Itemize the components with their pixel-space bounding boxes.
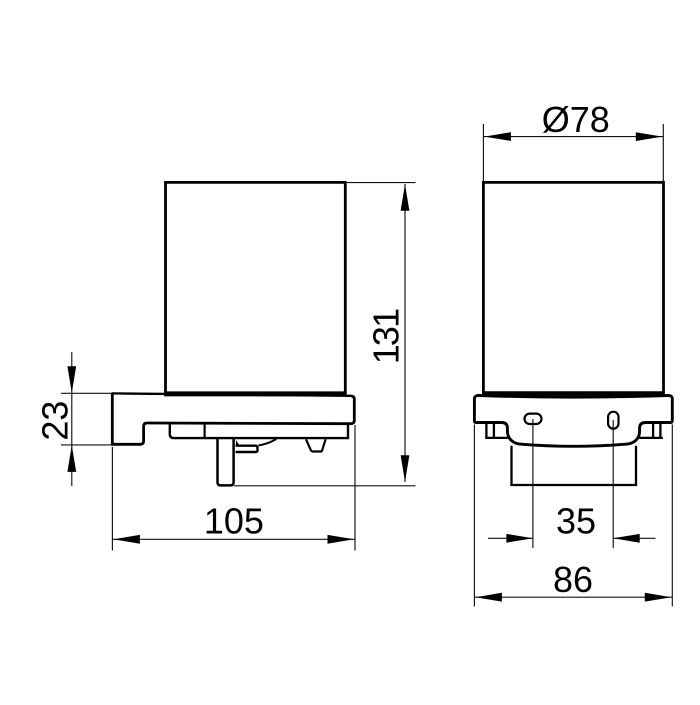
svg-text:105: 105	[204, 501, 264, 542]
svg-text:35: 35	[556, 500, 596, 541]
svg-text:131: 131	[366, 309, 407, 364]
svg-text:Ø78: Ø78	[542, 99, 610, 140]
svg-text:86: 86	[553, 559, 593, 600]
svg-text:23: 23	[34, 401, 75, 441]
